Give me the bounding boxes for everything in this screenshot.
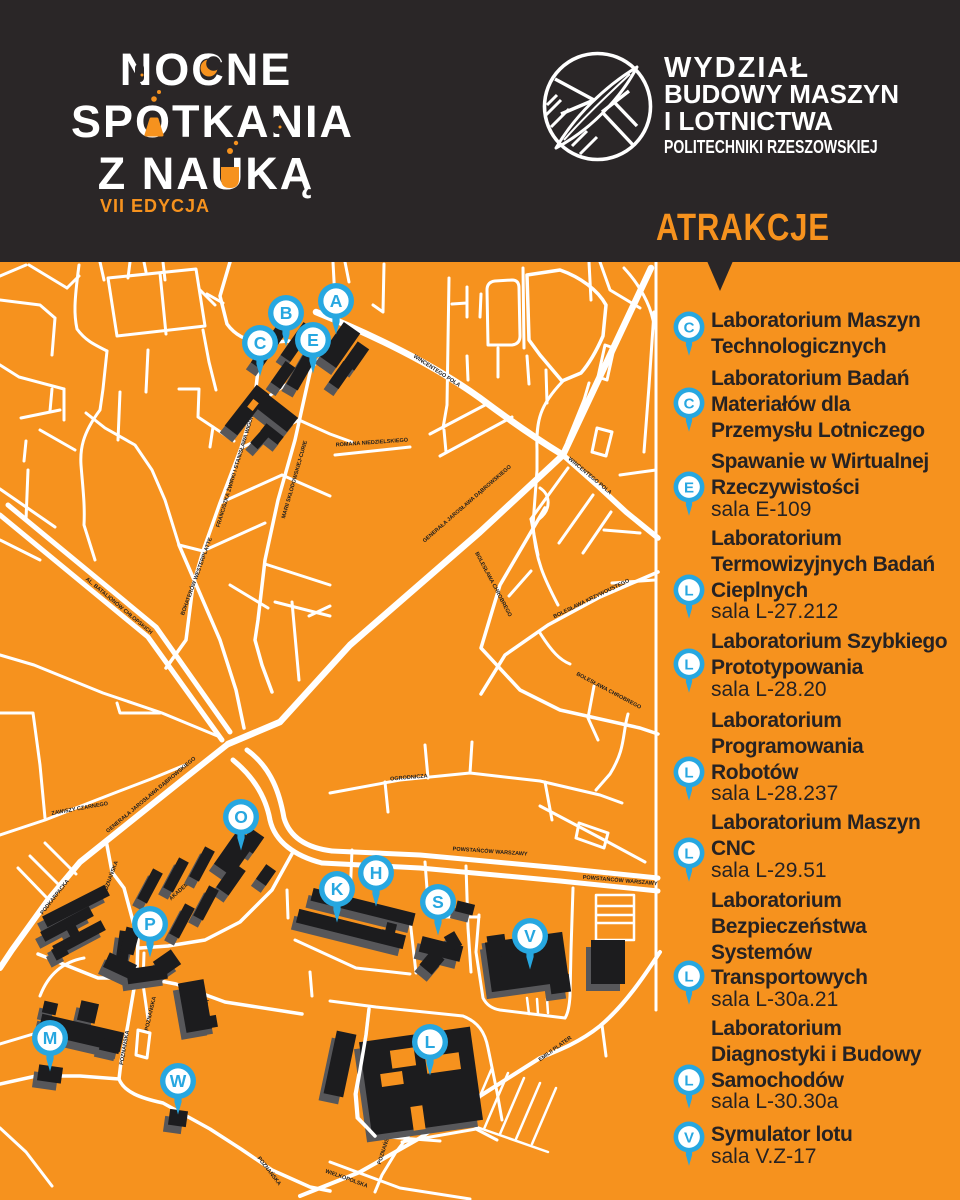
- svg-text:V: V: [684, 1129, 694, 1146]
- svg-text:C: C: [684, 319, 695, 336]
- svg-text:E: E: [684, 479, 694, 496]
- svg-text:C: C: [684, 395, 695, 412]
- svg-text:B: B: [280, 303, 293, 323]
- svg-text:H: H: [370, 863, 383, 883]
- svg-text:S: S: [432, 892, 444, 912]
- svg-text:O: O: [234, 807, 248, 827]
- svg-text:A: A: [330, 291, 343, 311]
- svg-text:L: L: [684, 764, 693, 781]
- svg-text:L: L: [425, 1032, 436, 1052]
- svg-text:P: P: [144, 914, 156, 934]
- svg-text:L: L: [684, 968, 693, 985]
- svg-text:C: C: [254, 333, 267, 353]
- svg-text:V: V: [524, 926, 536, 946]
- svg-text:E: E: [307, 330, 319, 350]
- svg-text:L: L: [684, 845, 693, 862]
- svg-text:L: L: [684, 1072, 693, 1089]
- svg-text:W: W: [170, 1071, 187, 1091]
- svg-text:L: L: [684, 582, 693, 599]
- svg-text:L: L: [684, 656, 693, 673]
- svg-text:K: K: [331, 879, 344, 899]
- svg-text:M: M: [43, 1028, 58, 1048]
